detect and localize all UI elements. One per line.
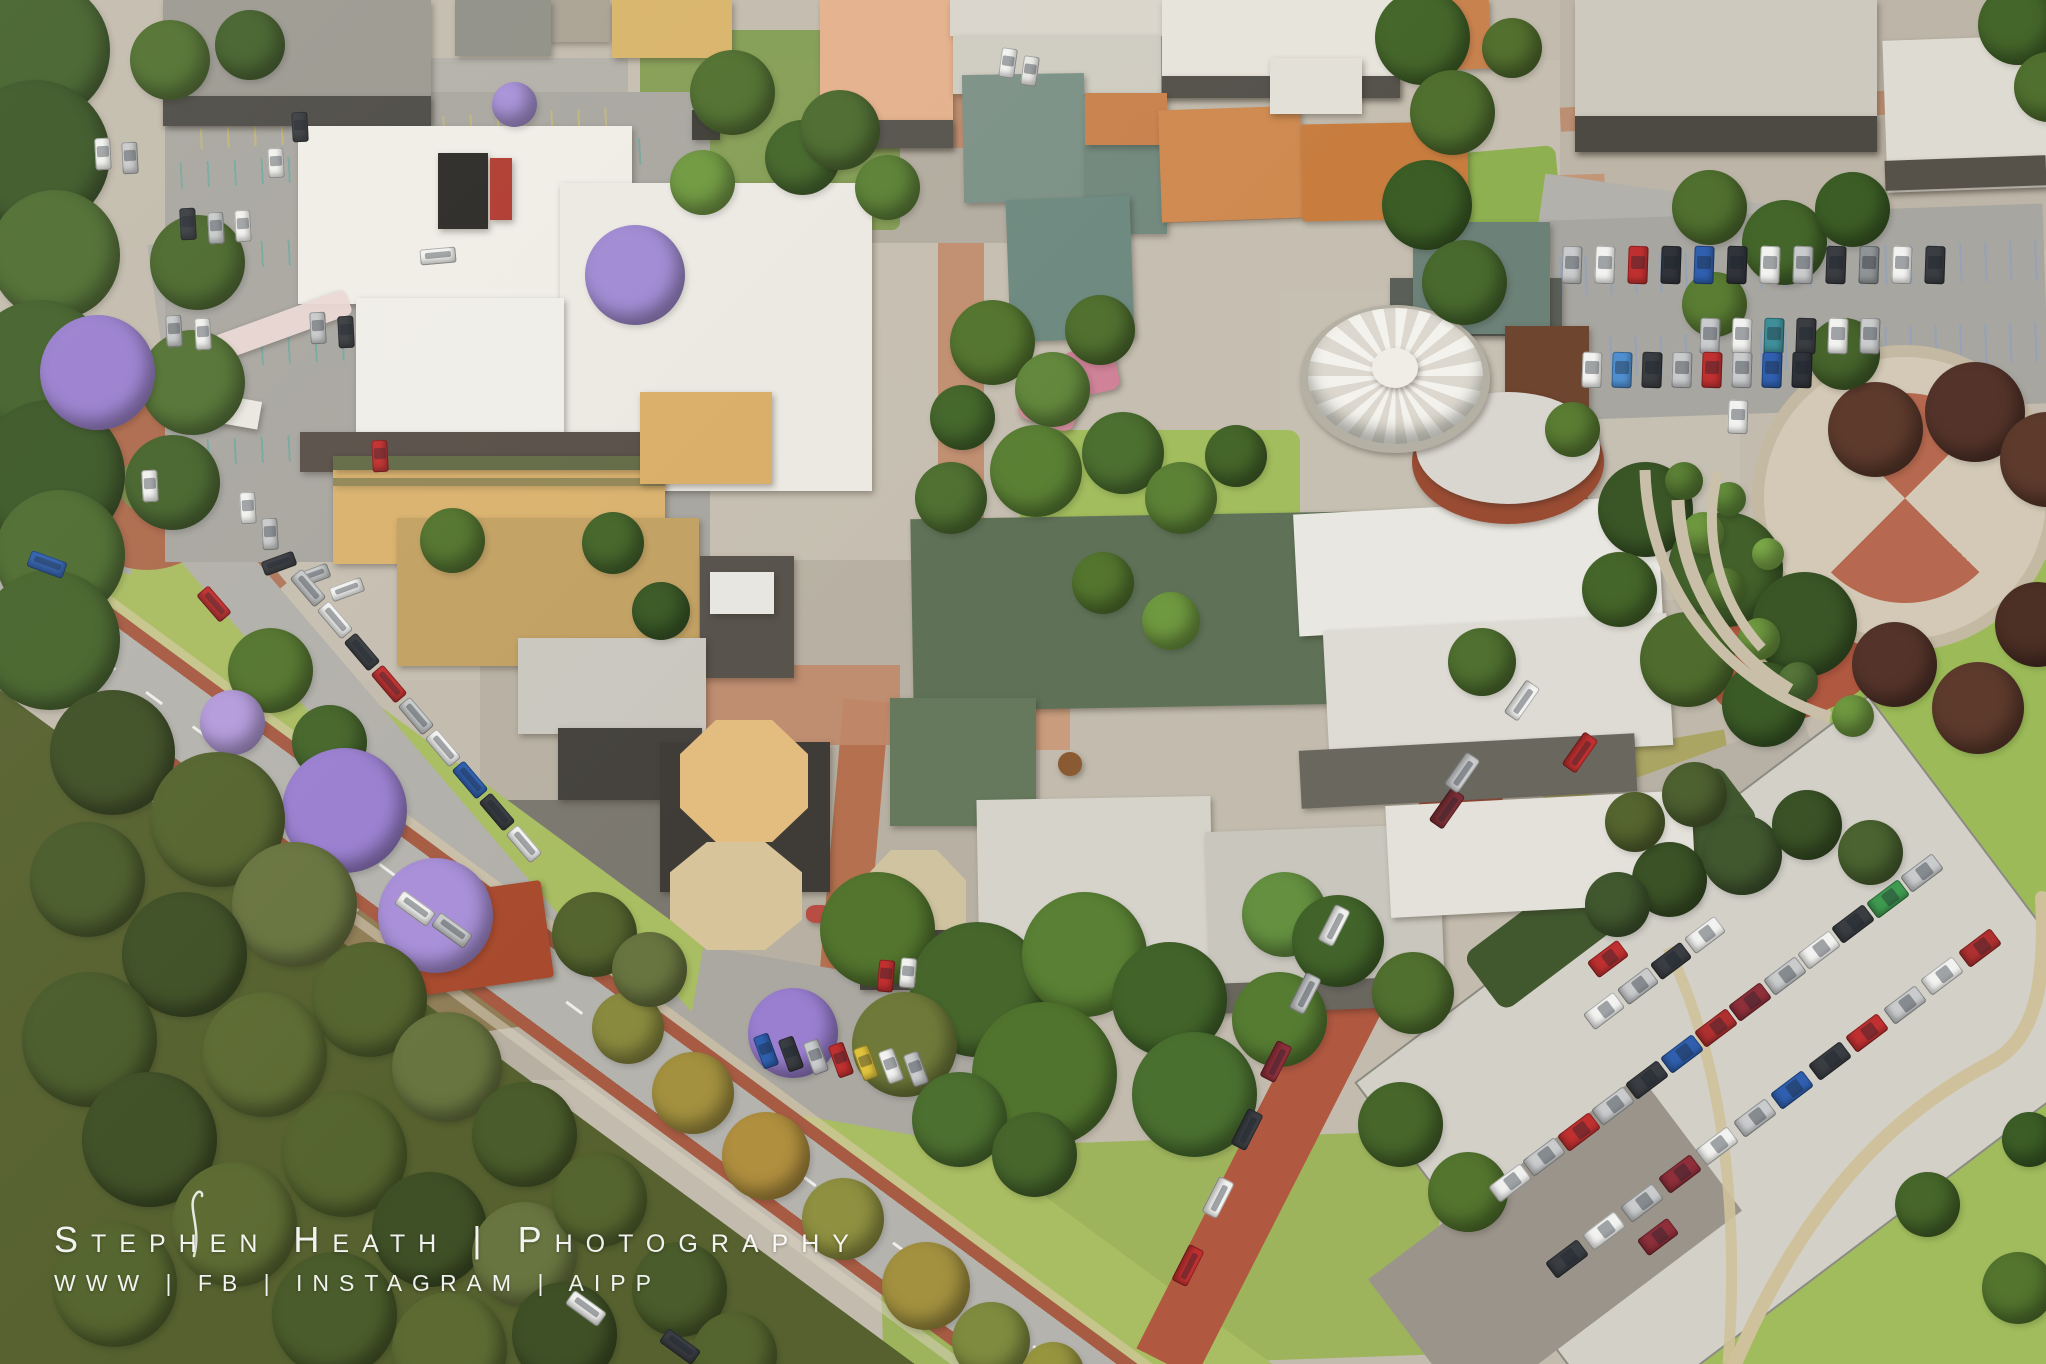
tree	[670, 150, 735, 215]
tree	[1702, 815, 1782, 895]
car	[309, 312, 327, 345]
car	[1641, 352, 1662, 389]
building-facade	[1575, 116, 1877, 152]
tree	[1778, 662, 1818, 702]
red-leaf-tree	[1828, 382, 1923, 477]
tree	[882, 1242, 970, 1330]
entry-canopy	[710, 572, 774, 614]
tree	[1640, 612, 1735, 707]
jacaranda	[492, 82, 537, 127]
tree	[1838, 820, 1903, 885]
white-roof	[950, 0, 1162, 36]
tree	[1205, 425, 1267, 487]
tree	[1815, 172, 1890, 247]
tree	[1145, 462, 1217, 534]
tree	[125, 435, 220, 530]
car	[207, 212, 225, 245]
gray-roof-building	[518, 638, 706, 734]
jacaranda	[200, 690, 265, 755]
pavilion-cap	[1372, 348, 1418, 388]
car	[165, 315, 183, 348]
car	[1671, 352, 1692, 389]
tree	[930, 385, 995, 450]
car	[267, 148, 285, 179]
car	[1660, 246, 1681, 285]
tree	[652, 1052, 734, 1134]
car	[1731, 318, 1752, 355]
car	[1731, 352, 1752, 389]
tree	[632, 582, 690, 640]
tree	[1682, 512, 1724, 554]
car	[1763, 318, 1784, 355]
tree	[150, 215, 245, 310]
car	[1825, 246, 1846, 285]
rooftop-plant	[438, 153, 488, 229]
car	[1627, 246, 1648, 285]
tree	[990, 425, 1082, 517]
rooftop-dome	[1058, 752, 1082, 776]
watermark-links: WWW | FB | INSTAGRAM | AIPP	[54, 1270, 862, 1297]
tree	[612, 932, 687, 1007]
building-fragment	[455, 0, 551, 56]
tree	[1422, 240, 1507, 325]
watermark-name: Stephen Heath | Photography	[54, 1220, 862, 1260]
tan-building	[640, 392, 772, 484]
tree	[30, 822, 145, 937]
jacaranda	[40, 315, 155, 430]
car	[1792, 246, 1813, 285]
car	[1791, 352, 1812, 389]
tree	[1410, 70, 1495, 155]
tree	[1662, 762, 1727, 827]
tree	[1752, 538, 1784, 570]
car	[194, 318, 212, 351]
car	[239, 492, 257, 525]
roof-stripe	[333, 478, 665, 486]
tree	[1482, 18, 1542, 78]
rooftop-red-structure	[490, 158, 512, 220]
car	[1581, 352, 1602, 389]
car	[179, 208, 197, 241]
teal-roof	[962, 73, 1086, 203]
tree	[855, 155, 920, 220]
tree	[140, 330, 245, 435]
tree	[1065, 295, 1135, 365]
car	[1924, 246, 1945, 285]
car	[899, 957, 918, 988]
tree	[1585, 872, 1650, 937]
tree	[232, 842, 357, 967]
tree	[420, 508, 485, 573]
car	[1759, 246, 1780, 285]
tree	[1832, 695, 1874, 737]
car	[419, 246, 456, 265]
tree	[1382, 160, 1472, 250]
orange-roof	[1158, 106, 1304, 223]
car	[1859, 318, 1880, 355]
tree	[1895, 1172, 1960, 1237]
photographer-watermark: Stephen Heath | Photography WWW | FB | I…	[54, 1220, 862, 1297]
aerial-photo: Stephen Heath | Photography WWW | FB | I…	[0, 0, 2046, 1364]
red-leaf-tree	[1932, 662, 2024, 754]
car	[1726, 246, 1747, 285]
tree	[215, 10, 285, 80]
tree	[1672, 170, 1747, 245]
car	[1699, 318, 1720, 355]
tree	[1665, 462, 1703, 500]
car	[291, 112, 309, 143]
tree	[1015, 352, 1090, 427]
tree	[1372, 952, 1454, 1034]
tree	[582, 512, 644, 574]
tree	[800, 90, 880, 170]
car	[1701, 352, 1722, 389]
tree	[722, 1112, 810, 1200]
car	[261, 518, 279, 551]
tree	[130, 20, 210, 100]
car	[1795, 318, 1816, 355]
jacaranda	[585, 225, 685, 325]
tree	[915, 462, 987, 534]
tree	[1705, 568, 1745, 608]
tree	[1358, 1082, 1443, 1167]
tree	[1582, 552, 1657, 627]
tree	[1772, 790, 1842, 860]
orange-roof	[1085, 93, 1167, 145]
tree	[992, 1112, 1077, 1197]
tree	[1738, 618, 1780, 660]
building-facade	[1885, 155, 2046, 191]
car	[234, 210, 252, 243]
car	[94, 138, 112, 171]
car	[1561, 246, 1582, 285]
tree	[1712, 482, 1746, 516]
building-fragment	[548, 0, 610, 42]
hexagonal-hall	[680, 720, 808, 842]
car	[1858, 246, 1879, 285]
hexagonal-hall	[670, 842, 802, 950]
car	[1611, 352, 1632, 389]
tree	[1072, 552, 1134, 614]
tree	[690, 50, 775, 135]
tree	[1982, 1252, 2046, 1324]
tree	[1448, 628, 1516, 696]
red-leaf-tree	[1852, 622, 1937, 707]
tan-building	[612, 0, 732, 58]
car	[877, 959, 896, 992]
car	[1891, 246, 1912, 285]
car	[371, 440, 389, 473]
tree	[1142, 592, 1200, 650]
car	[1727, 400, 1748, 435]
car	[121, 142, 139, 175]
car	[1761, 352, 1782, 389]
car	[1827, 318, 1848, 355]
car	[1693, 246, 1714, 285]
white-roof	[1270, 58, 1362, 114]
tree	[1545, 402, 1600, 457]
car	[1594, 246, 1615, 285]
car	[141, 470, 159, 503]
car	[337, 316, 355, 349]
tree	[202, 992, 327, 1117]
tree	[1605, 792, 1665, 852]
